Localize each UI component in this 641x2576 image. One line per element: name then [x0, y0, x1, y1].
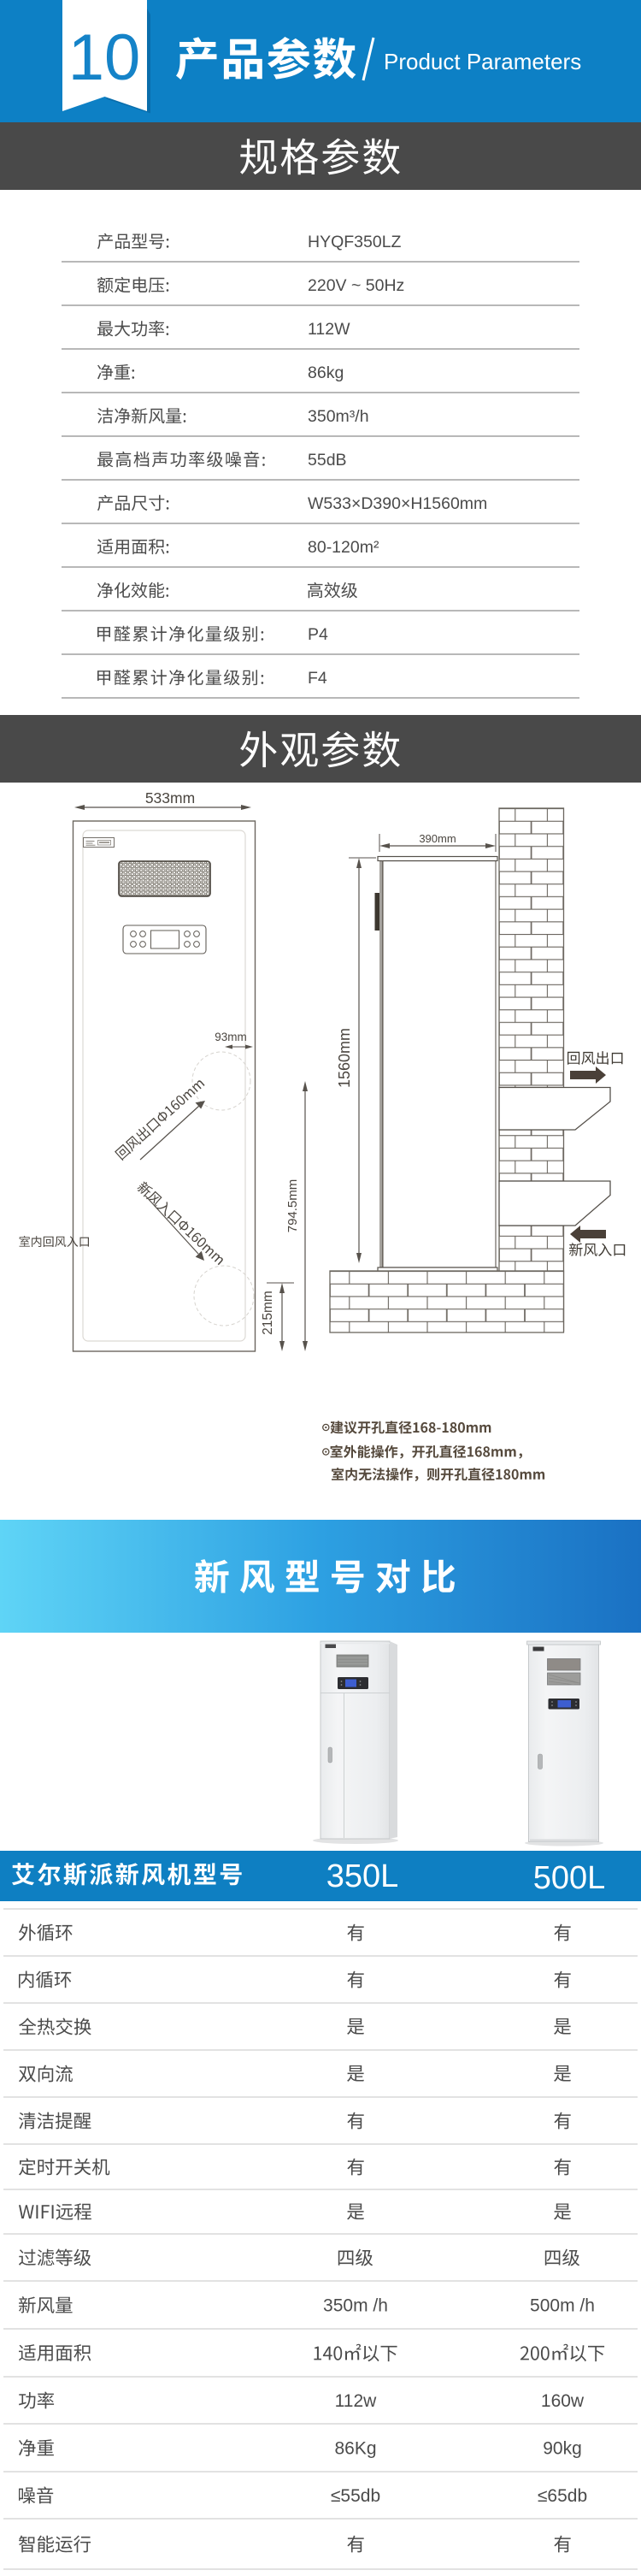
- svg-text:Product Parameters: Product Parameters: [384, 49, 581, 74]
- svg-text:HYQF350LZ: HYQF350LZ: [308, 233, 402, 251]
- svg-text:≤65db: ≤65db: [538, 2486, 587, 2506]
- svg-text:220V ~ 50Hz: 220V ~ 50Hz: [308, 276, 404, 295]
- svg-text:≤55db: ≤55db: [331, 2486, 380, 2506]
- svg-text:112w: 112w: [335, 2391, 377, 2411]
- svg-text:350m /h: 350m /h: [323, 2295, 388, 2315]
- svg-text:390mm: 390mm: [419, 832, 456, 845]
- svg-text:215mm: 215mm: [261, 1291, 275, 1335]
- svg-text:794.5mm: 794.5mm: [285, 1179, 300, 1233]
- svg-text:10: 10: [68, 21, 141, 94]
- svg-text:86Kg: 86Kg: [334, 2438, 376, 2458]
- svg-text:F4: F4: [308, 669, 327, 688]
- svg-text:P4: P4: [308, 625, 328, 644]
- svg-text:1560mm: 1560mm: [336, 1028, 353, 1088]
- svg-text:350m³/h: 350m³/h: [308, 407, 369, 426]
- svg-text:350L: 350L: [326, 1858, 399, 1894]
- svg-text:93mm: 93mm: [215, 1031, 247, 1043]
- svg-text:80-120m²: 80-120m²: [308, 538, 379, 557]
- svg-text:90kg: 90kg: [543, 2438, 582, 2458]
- svg-text:160w: 160w: [541, 2391, 585, 2411]
- svg-text:86kg: 86kg: [308, 363, 344, 382]
- svg-text:112W: 112W: [308, 320, 350, 339]
- svg-text:533mm: 533mm: [145, 789, 195, 806]
- svg-text:500m /h: 500m /h: [530, 2295, 595, 2315]
- svg-text:55dB: 55dB: [308, 451, 347, 470]
- svg-text:W533×D390×H1560mm: W533×D390×H1560mm: [308, 494, 487, 513]
- svg-text:500L: 500L: [533, 1860, 606, 1896]
